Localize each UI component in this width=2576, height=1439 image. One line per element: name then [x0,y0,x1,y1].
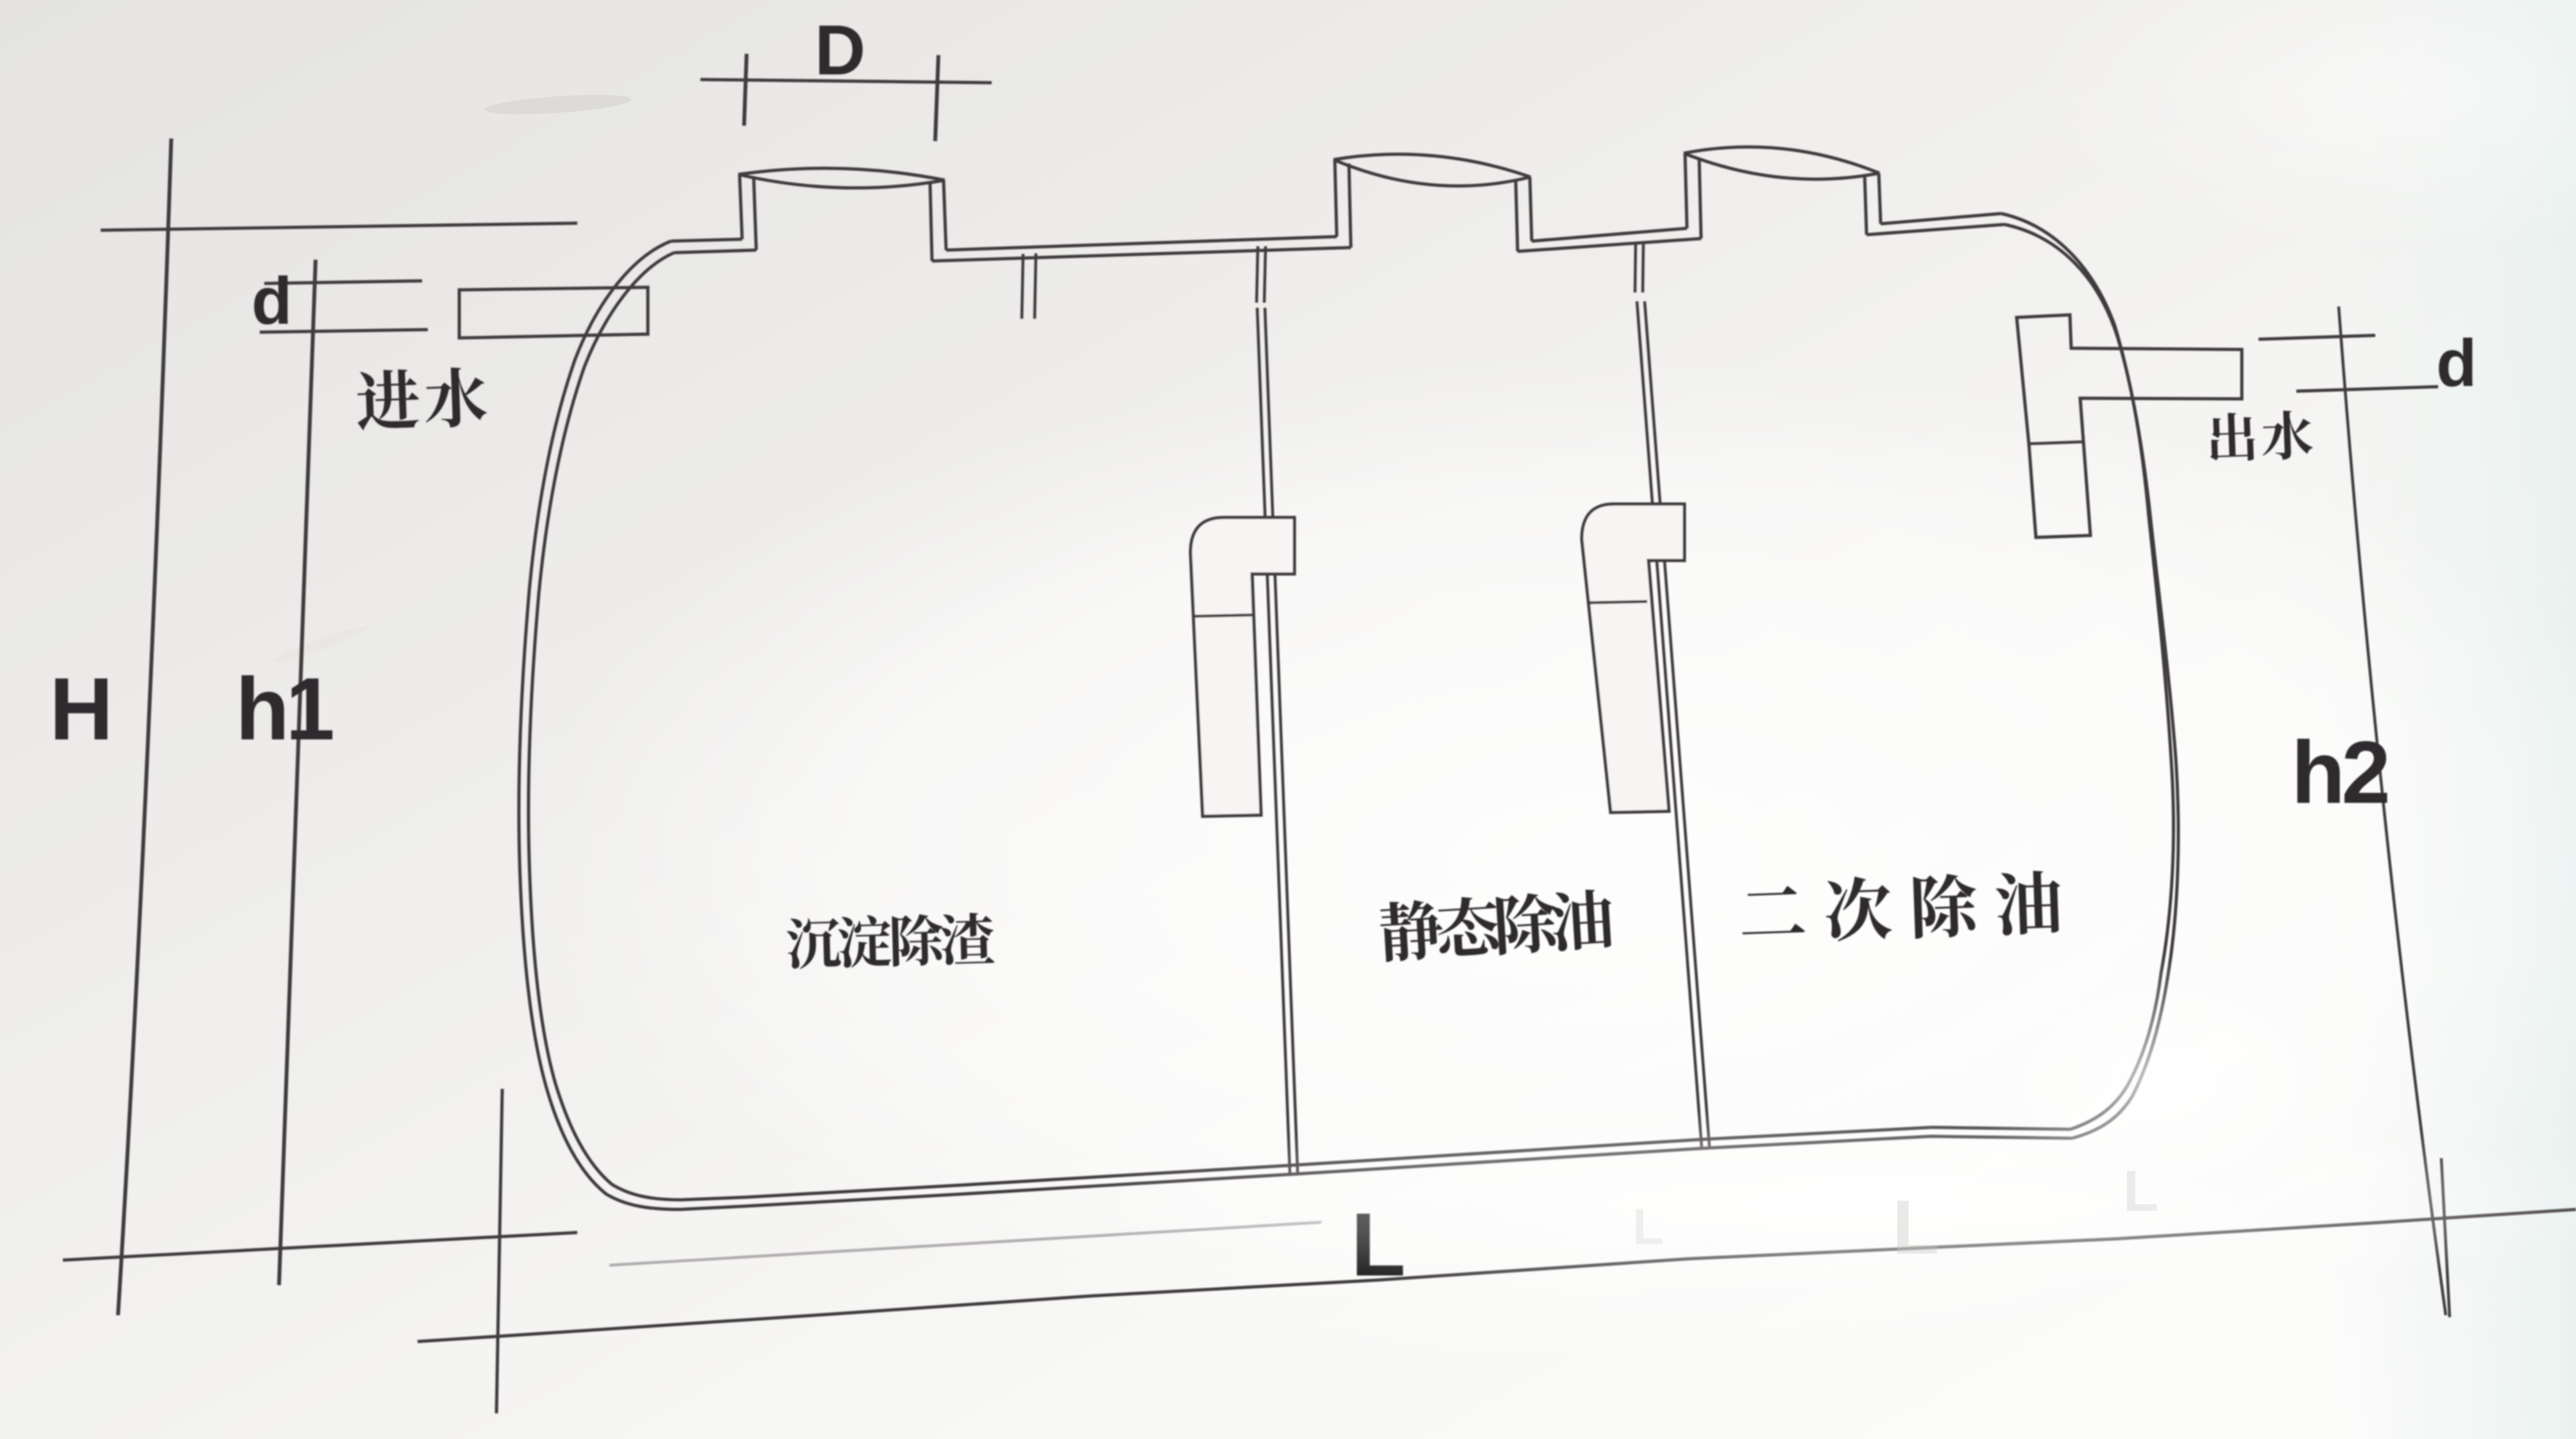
svg-text:L: L [1892,1184,1939,1270]
svg-text:L: L [2123,1159,2158,1224]
svg-text:h2: h2 [2291,723,2387,822]
svg-text:D: D [815,11,865,90]
svg-text:H: H [49,660,114,759]
svg-text:L: L [1632,1198,1664,1255]
svg-text:d: d [2436,326,2477,401]
svg-text:h1: h1 [235,660,332,759]
svg-text:d: d [251,264,292,339]
